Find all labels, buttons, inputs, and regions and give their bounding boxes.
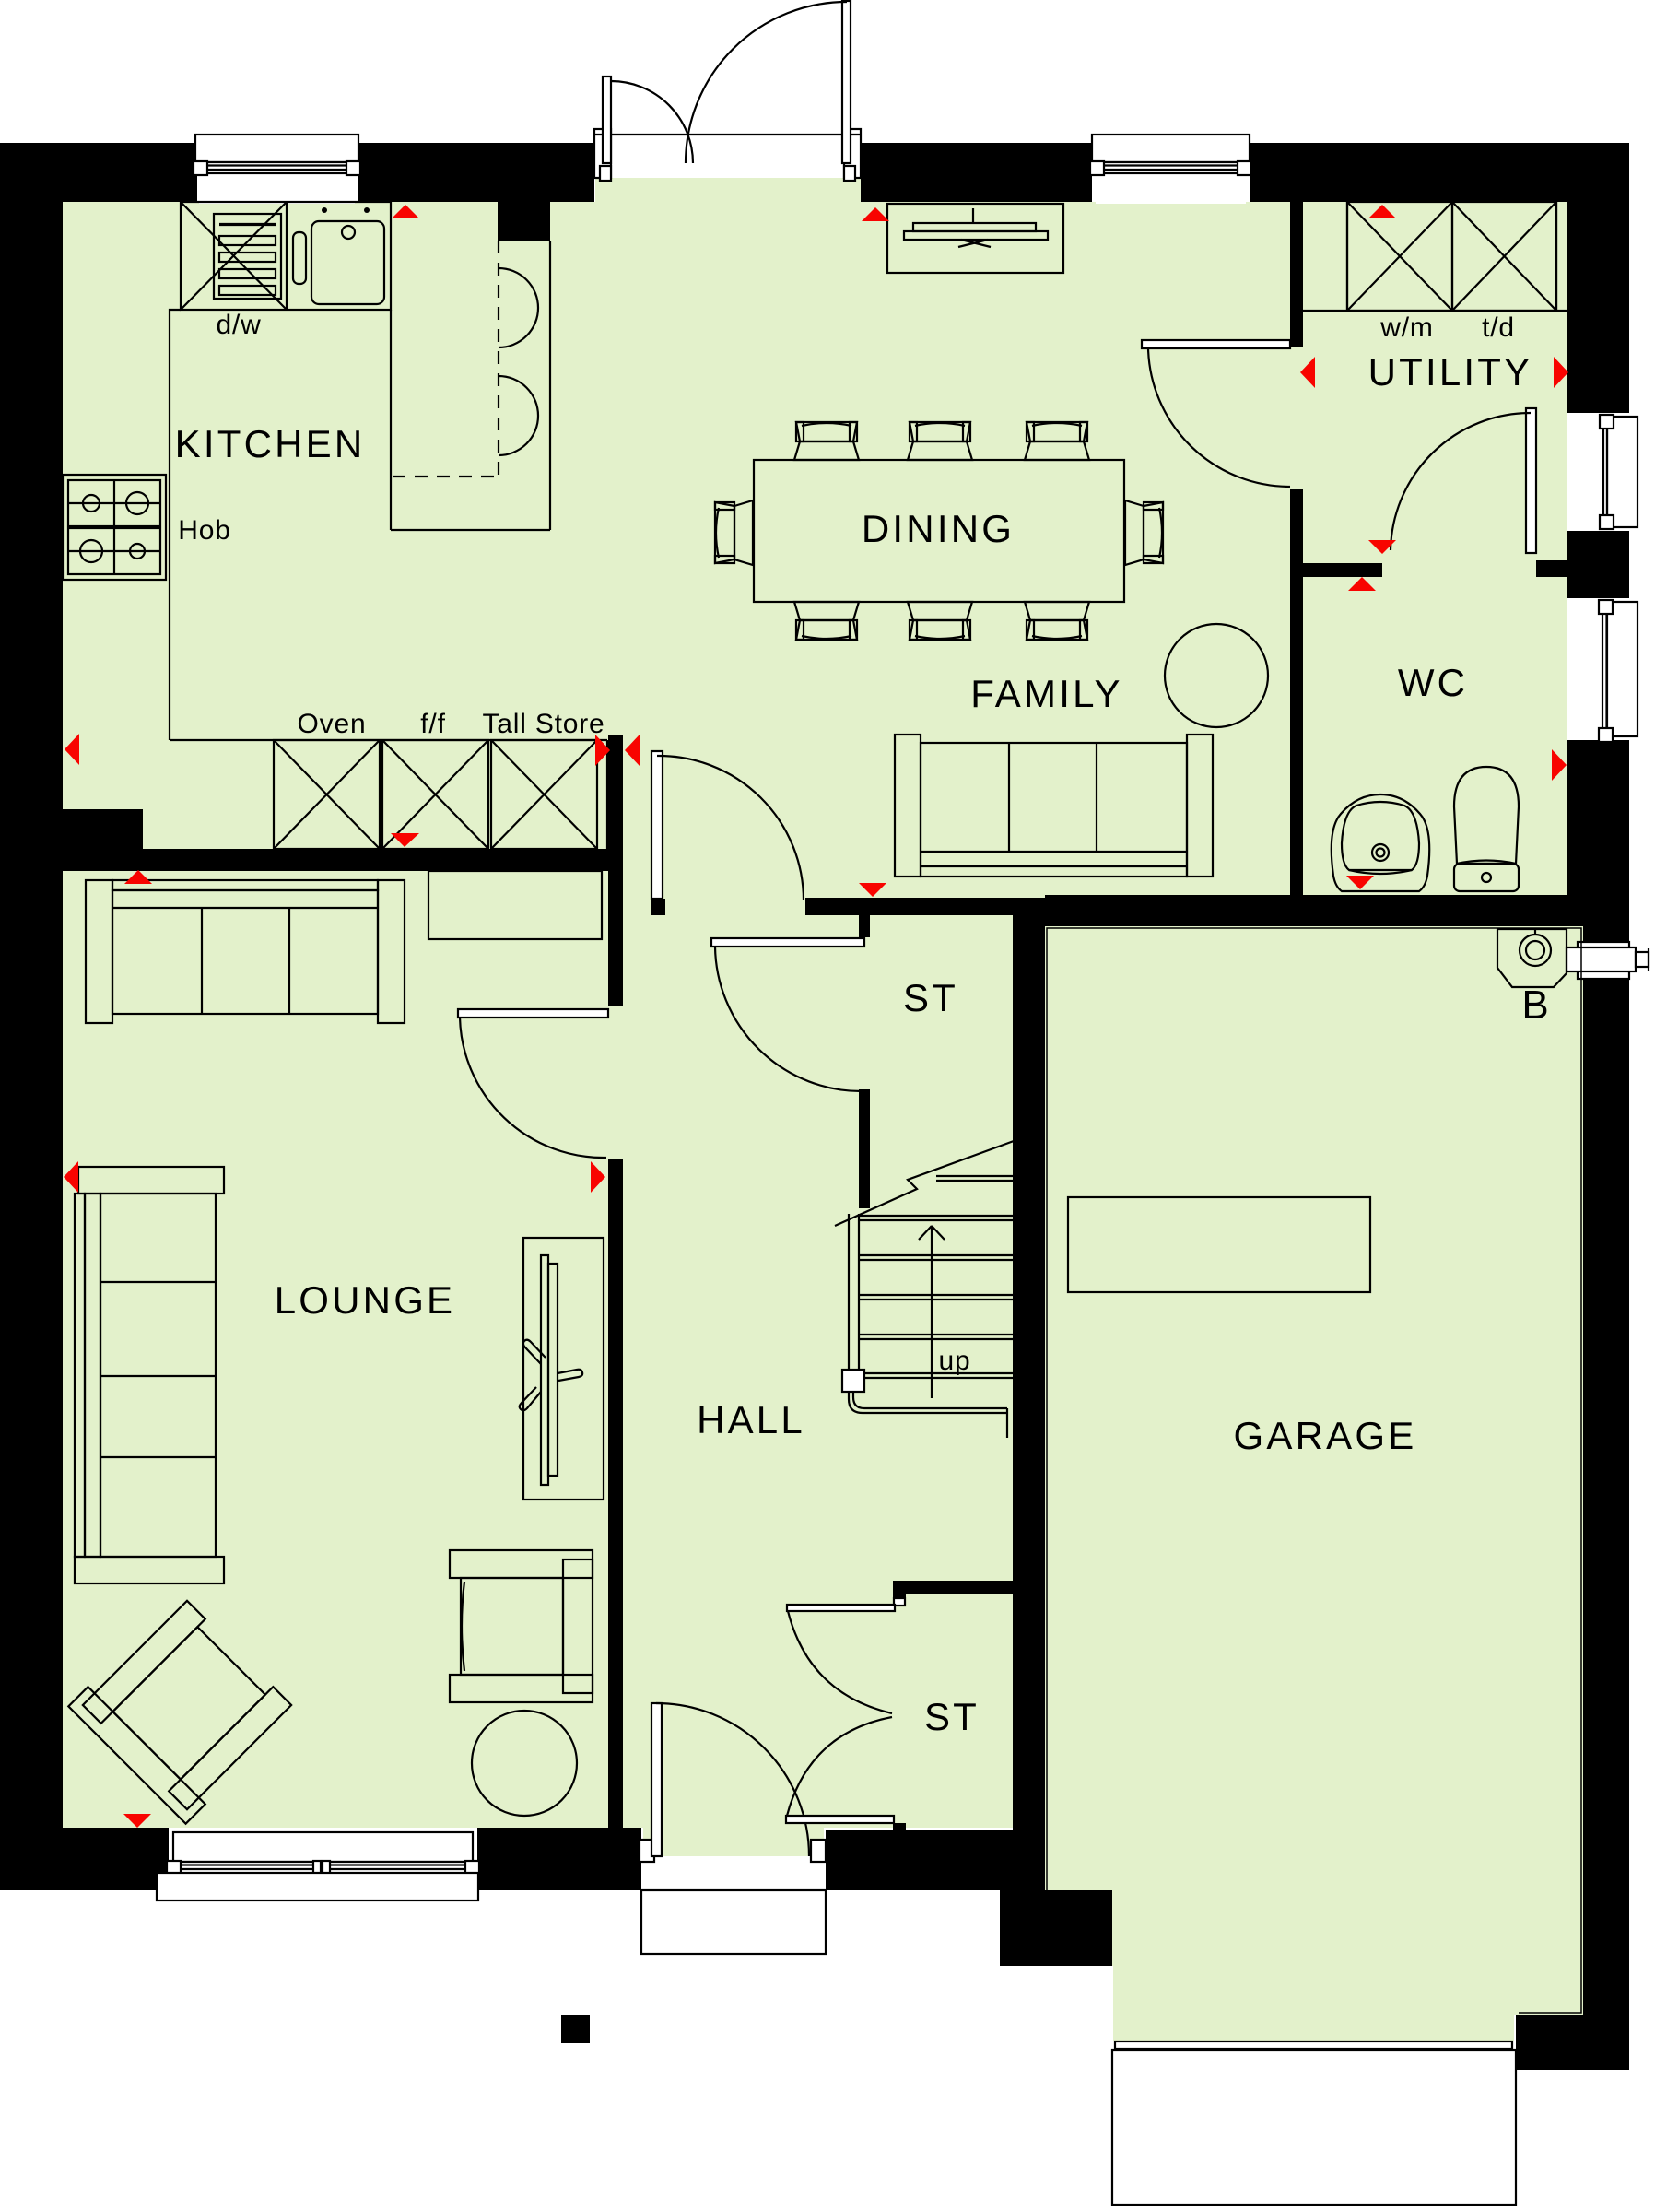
svg-text:B: B [1521,982,1548,1028]
svg-text:Hob: Hob [178,515,230,546]
svg-text:HALL: HALL [697,1398,805,1441]
svg-text:Oven: Oven [298,709,367,739]
svg-text:up: up [939,1346,971,1376]
svg-text:KITCHEN: KITCHEN [175,422,366,465]
svg-text:d/w: d/w [216,310,261,340]
svg-text:FAMILY: FAMILY [970,672,1122,715]
svg-text:Tall Store: Tall Store [482,709,604,739]
svg-text:WC: WC [1398,661,1468,704]
svg-text:ST: ST [924,1695,980,1738]
svg-text:GARAGE: GARAGE [1234,1414,1417,1457]
svg-text:f/f: f/f [420,709,445,739]
svg-text:ST: ST [903,976,958,1019]
svg-text:w/m: w/m [1379,312,1433,343]
svg-text:t/d: t/d [1482,312,1515,343]
svg-text:LOUNGE: LOUNGE [275,1278,456,1322]
svg-text:DINING: DINING [862,507,1015,550]
svg-text:UTILITY: UTILITY [1368,350,1533,394]
